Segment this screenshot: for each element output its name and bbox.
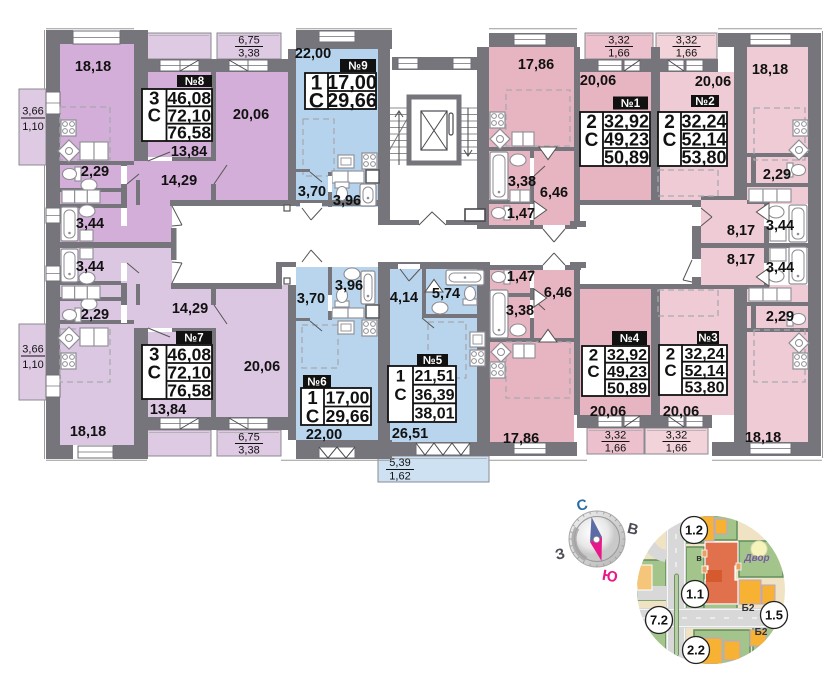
svg-text:3,96: 3,96 <box>335 278 363 294</box>
svg-text:С: С <box>148 362 161 383</box>
svg-text:3,96: 3,96 <box>333 193 361 209</box>
svg-text:3,66: 3,66 <box>22 106 43 118</box>
svg-text:20,06: 20,06 <box>580 73 616 89</box>
svg-text:29,66: 29,66 <box>326 406 370 426</box>
svg-text:26,51: 26,51 <box>392 426 428 442</box>
svg-text:С: С <box>306 405 319 426</box>
svg-text:№1: №1 <box>621 98 641 110</box>
svg-text:3,32: 3,32 <box>676 35 697 47</box>
svg-text:3,38: 3,38 <box>506 303 534 319</box>
svg-text:46,08: 46,08 <box>167 344 211 364</box>
svg-text:3,32: 3,32 <box>608 35 629 47</box>
svg-text:21,51: 21,51 <box>414 368 454 385</box>
svg-text:50,89: 50,89 <box>607 380 647 397</box>
svg-text:20,06: 20,06 <box>233 107 269 123</box>
svg-text:5,74: 5,74 <box>432 286 460 302</box>
svg-text:в: в <box>696 553 702 563</box>
svg-text:20,06: 20,06 <box>695 74 731 90</box>
svg-text:№4: №4 <box>620 333 640 345</box>
svg-text:Б2: Б2 <box>742 603 755 614</box>
svg-text:29,66: 29,66 <box>327 90 377 112</box>
svg-text:20,06: 20,06 <box>244 359 280 375</box>
svg-text:18,18: 18,18 <box>75 59 111 75</box>
svg-text:18,18: 18,18 <box>745 430 781 446</box>
svg-text:13,84: 13,84 <box>150 402 186 418</box>
svg-text:32,92: 32,92 <box>604 111 649 131</box>
svg-text:14,29: 14,29 <box>172 301 208 317</box>
svg-text:20,06: 20,06 <box>663 404 699 420</box>
svg-text:Б2: Б2 <box>755 627 768 638</box>
svg-text:1.1: 1.1 <box>686 587 704 602</box>
svg-text:53,80: 53,80 <box>684 379 724 396</box>
svg-text:18,18: 18,18 <box>752 62 788 78</box>
svg-text:1,47: 1,47 <box>507 206 535 222</box>
svg-text:3,44: 3,44 <box>766 218 794 234</box>
svg-text:3,32: 3,32 <box>666 430 687 442</box>
svg-text:38,01: 38,01 <box>414 405 454 422</box>
svg-text:1,66: 1,66 <box>608 48 629 60</box>
svg-text:14,29: 14,29 <box>161 173 197 189</box>
svg-text:32,24: 32,24 <box>681 111 726 131</box>
svg-text:76,58: 76,58 <box>167 123 211 143</box>
svg-text:3,38: 3,38 <box>238 48 259 60</box>
svg-text:72,10: 72,10 <box>167 362 211 382</box>
svg-text:32,92: 32,92 <box>607 347 647 364</box>
svg-text:3,70: 3,70 <box>298 184 326 200</box>
svg-text:17,86: 17,86 <box>518 57 554 73</box>
svg-text:36,39: 36,39 <box>414 387 454 404</box>
svg-text:3,32: 3,32 <box>605 430 626 442</box>
svg-text:2,29: 2,29 <box>766 309 794 325</box>
svg-text:№8: №8 <box>185 76 205 88</box>
svg-text:1.5: 1.5 <box>765 608 783 623</box>
svg-text:1: 1 <box>396 366 405 385</box>
svg-text:76,58: 76,58 <box>167 380 211 400</box>
svg-text:6,75: 6,75 <box>238 35 259 47</box>
svg-text:52,14: 52,14 <box>681 129 726 149</box>
svg-text:С: С <box>148 105 161 126</box>
svg-text:49,23: 49,23 <box>604 129 649 149</box>
svg-text:4,14: 4,14 <box>390 290 418 306</box>
svg-text:1.2: 1.2 <box>685 523 703 538</box>
svg-text:3,44: 3,44 <box>76 216 104 232</box>
svg-text:1,10: 1,10 <box>22 359 43 371</box>
svg-text:Ю: Ю <box>601 567 619 586</box>
svg-text:3,38: 3,38 <box>508 174 536 190</box>
svg-text:1,66: 1,66 <box>605 443 626 455</box>
svg-text:№2: №2 <box>695 96 714 108</box>
svg-text:№3: №3 <box>698 333 717 345</box>
svg-text:С: С <box>663 130 677 151</box>
svg-text:2,29: 2,29 <box>763 167 791 183</box>
svg-text:1,10: 1,10 <box>22 121 43 133</box>
svg-text:1,66: 1,66 <box>666 443 687 455</box>
svg-text:С: С <box>309 90 324 113</box>
svg-text:С: С <box>585 130 599 151</box>
svg-text:С: С <box>394 385 406 404</box>
svg-text:3,38: 3,38 <box>238 445 259 457</box>
svg-text:22,00: 22,00 <box>295 46 331 62</box>
svg-text:5,39: 5,39 <box>389 457 410 469</box>
svg-text:32,24: 32,24 <box>684 346 724 363</box>
svg-text:2.2: 2.2 <box>687 643 705 658</box>
svg-text:3,44: 3,44 <box>76 259 104 275</box>
svg-text:2,29: 2,29 <box>81 164 109 180</box>
svg-text:6,46: 6,46 <box>544 285 572 301</box>
svg-text:№7: №7 <box>184 333 203 345</box>
svg-text:6,46: 6,46 <box>540 185 568 201</box>
svg-text:8,17: 8,17 <box>727 223 755 239</box>
svg-text:20,06: 20,06 <box>590 404 626 420</box>
svg-text:49,23: 49,23 <box>607 364 647 381</box>
svg-text:17,86: 17,86 <box>503 431 539 447</box>
svg-text:2,29: 2,29 <box>81 307 109 323</box>
svg-text:3,70: 3,70 <box>297 291 325 307</box>
svg-text:7.2: 7.2 <box>650 613 668 628</box>
svg-text:Двор: Двор <box>743 553 769 564</box>
svg-text:8,17: 8,17 <box>727 252 755 268</box>
svg-text:3,66: 3,66 <box>22 344 43 356</box>
svg-text:52,14: 52,14 <box>684 363 724 380</box>
svg-text:С: С <box>587 362 599 381</box>
svg-text:3,44: 3,44 <box>766 260 794 276</box>
svg-text:17,00: 17,00 <box>326 388 370 408</box>
svg-text:18,18: 18,18 <box>70 424 106 440</box>
svg-text:13,84: 13,84 <box>171 144 207 160</box>
svg-text:№9: №9 <box>348 61 367 73</box>
svg-text:22,00: 22,00 <box>306 427 342 443</box>
svg-text:1,47: 1,47 <box>507 269 535 285</box>
svg-text:С: С <box>664 361 676 380</box>
svg-text:1,66: 1,66 <box>676 48 697 60</box>
svg-text:50,89: 50,89 <box>604 147 649 167</box>
svg-text:53,80: 53,80 <box>681 147 726 167</box>
svg-text:6,75: 6,75 <box>238 432 259 444</box>
svg-text:1,62: 1,62 <box>389 471 410 483</box>
